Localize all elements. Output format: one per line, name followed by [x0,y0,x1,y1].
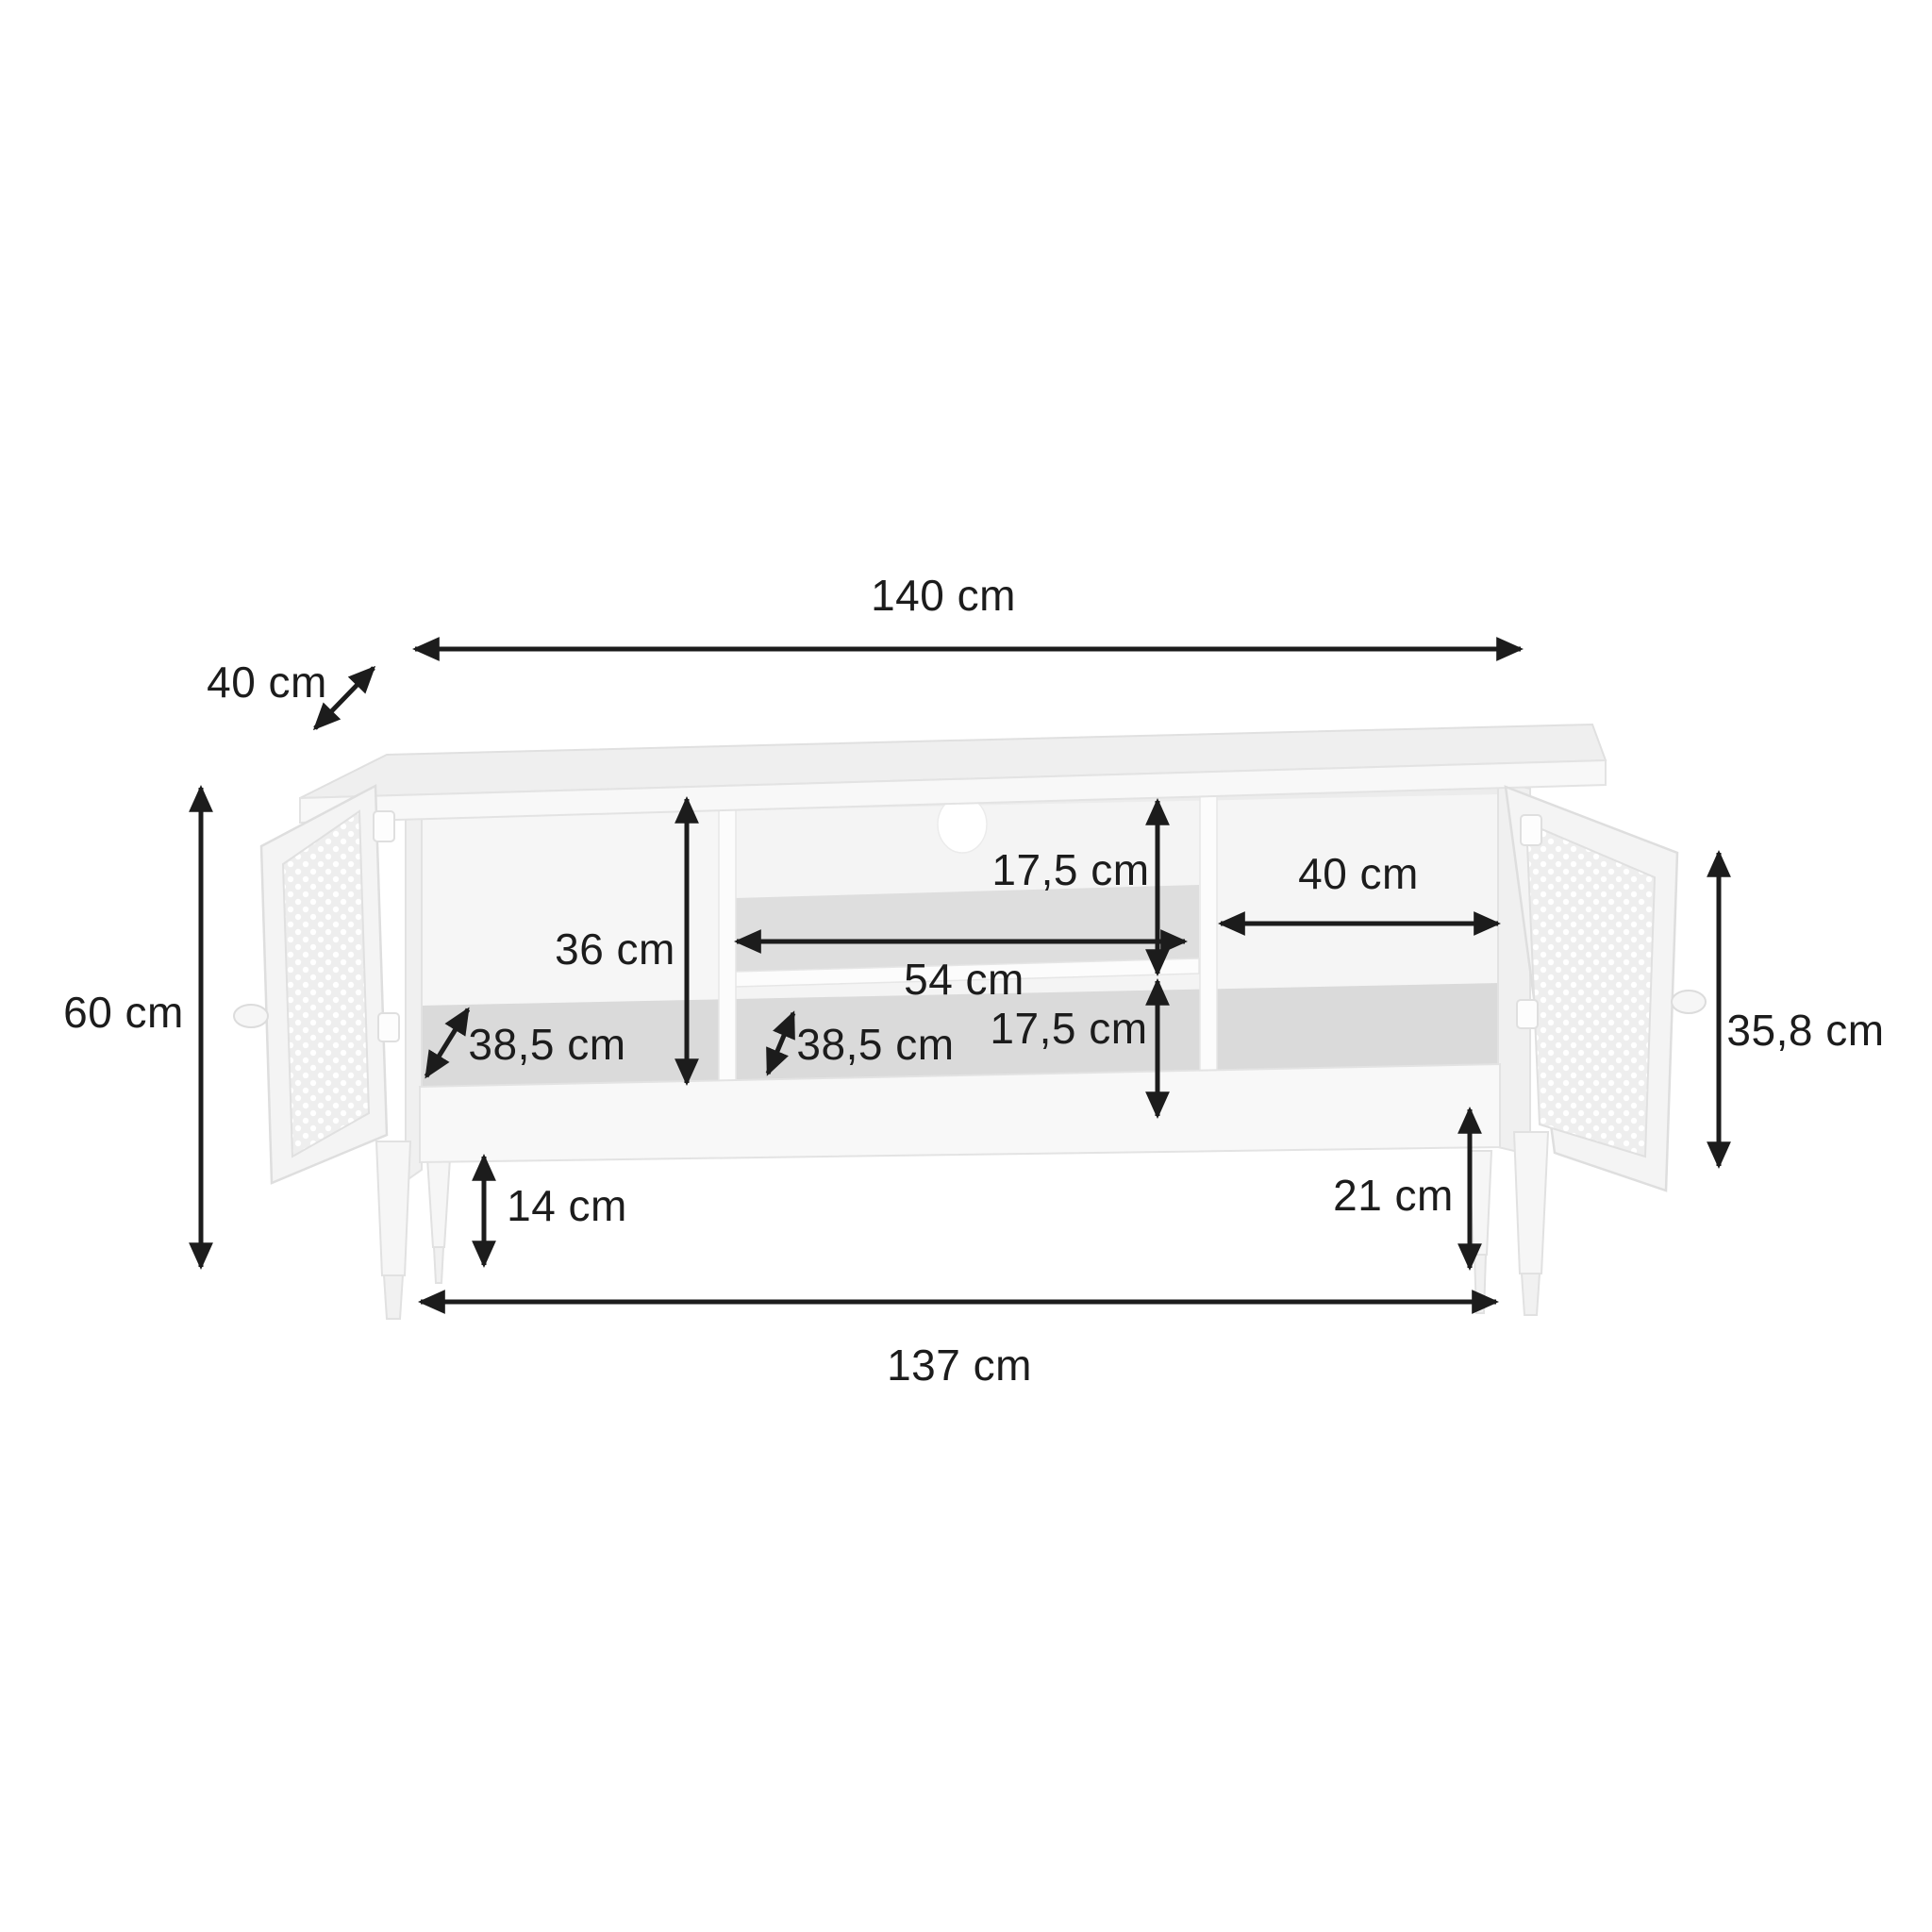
dim-center-compartment-depth-label: 38,5 cm [796,1020,954,1069]
dim-top-niche-height-label: 17,5 cm [991,845,1149,894]
dim-center-niche-width-label: 54 cm [904,955,1024,1004]
dim-left-compartment-depth-label: 38,5 cm [468,1020,625,1069]
dim-overall-height-label: 60 cm [63,988,184,1037]
rear-left-foot [434,1247,443,1283]
diagram-canvas: 140 cm 40 cm 60 cm 36 cm 17,5 cm 54 cm 4… [0,0,1932,1932]
front-left-foot [384,1275,403,1319]
dim-right-floor-clearance-label: 21 cm [1333,1171,1454,1220]
dim-door-height-label: 35,8 cm [1726,1006,1884,1055]
left-door-knob [234,1005,268,1027]
right-door-cane-panel [1526,823,1655,1157]
dim-base-width-label: 137 cm [887,1341,1032,1390]
right-door-knob [1672,991,1706,1013]
dim-overall-depth-label: 40 cm [207,658,327,707]
left-door-hinge-bottom [378,1013,399,1041]
rear-left-leg [427,1158,450,1247]
rear-right-foot [1474,1255,1486,1313]
front-right-foot [1522,1274,1540,1315]
divider-right [1200,787,1217,1074]
dim-left-floor-clearance-label: 14 cm [507,1181,627,1230]
left-door [234,786,399,1183]
divider-left [719,797,736,1084]
left-door-cane-panel [283,811,369,1157]
rear-right-leg [1469,1151,1491,1255]
right-door [1506,787,1706,1191]
dim-bottom-niche-height-label: 17,5 cm [990,1004,1147,1053]
front-right-leg [1514,1132,1548,1274]
dim-interior-height-label: 36 cm [555,924,675,974]
tv-stand-illustration [234,724,1706,1319]
furniture-dimension-diagram: 140 cm 40 cm 60 cm 36 cm 17,5 cm 54 cm 4… [0,0,1932,1932]
left-door-hinge-top [374,811,394,841]
dim-overall-width-label: 140 cm [871,571,1016,620]
right-door-hinge-top [1521,815,1541,845]
dim-right-compartment-width-label: 40 cm [1298,849,1419,898]
right-door-hinge-bottom [1517,1000,1538,1028]
front-left-leg [376,1141,410,1275]
